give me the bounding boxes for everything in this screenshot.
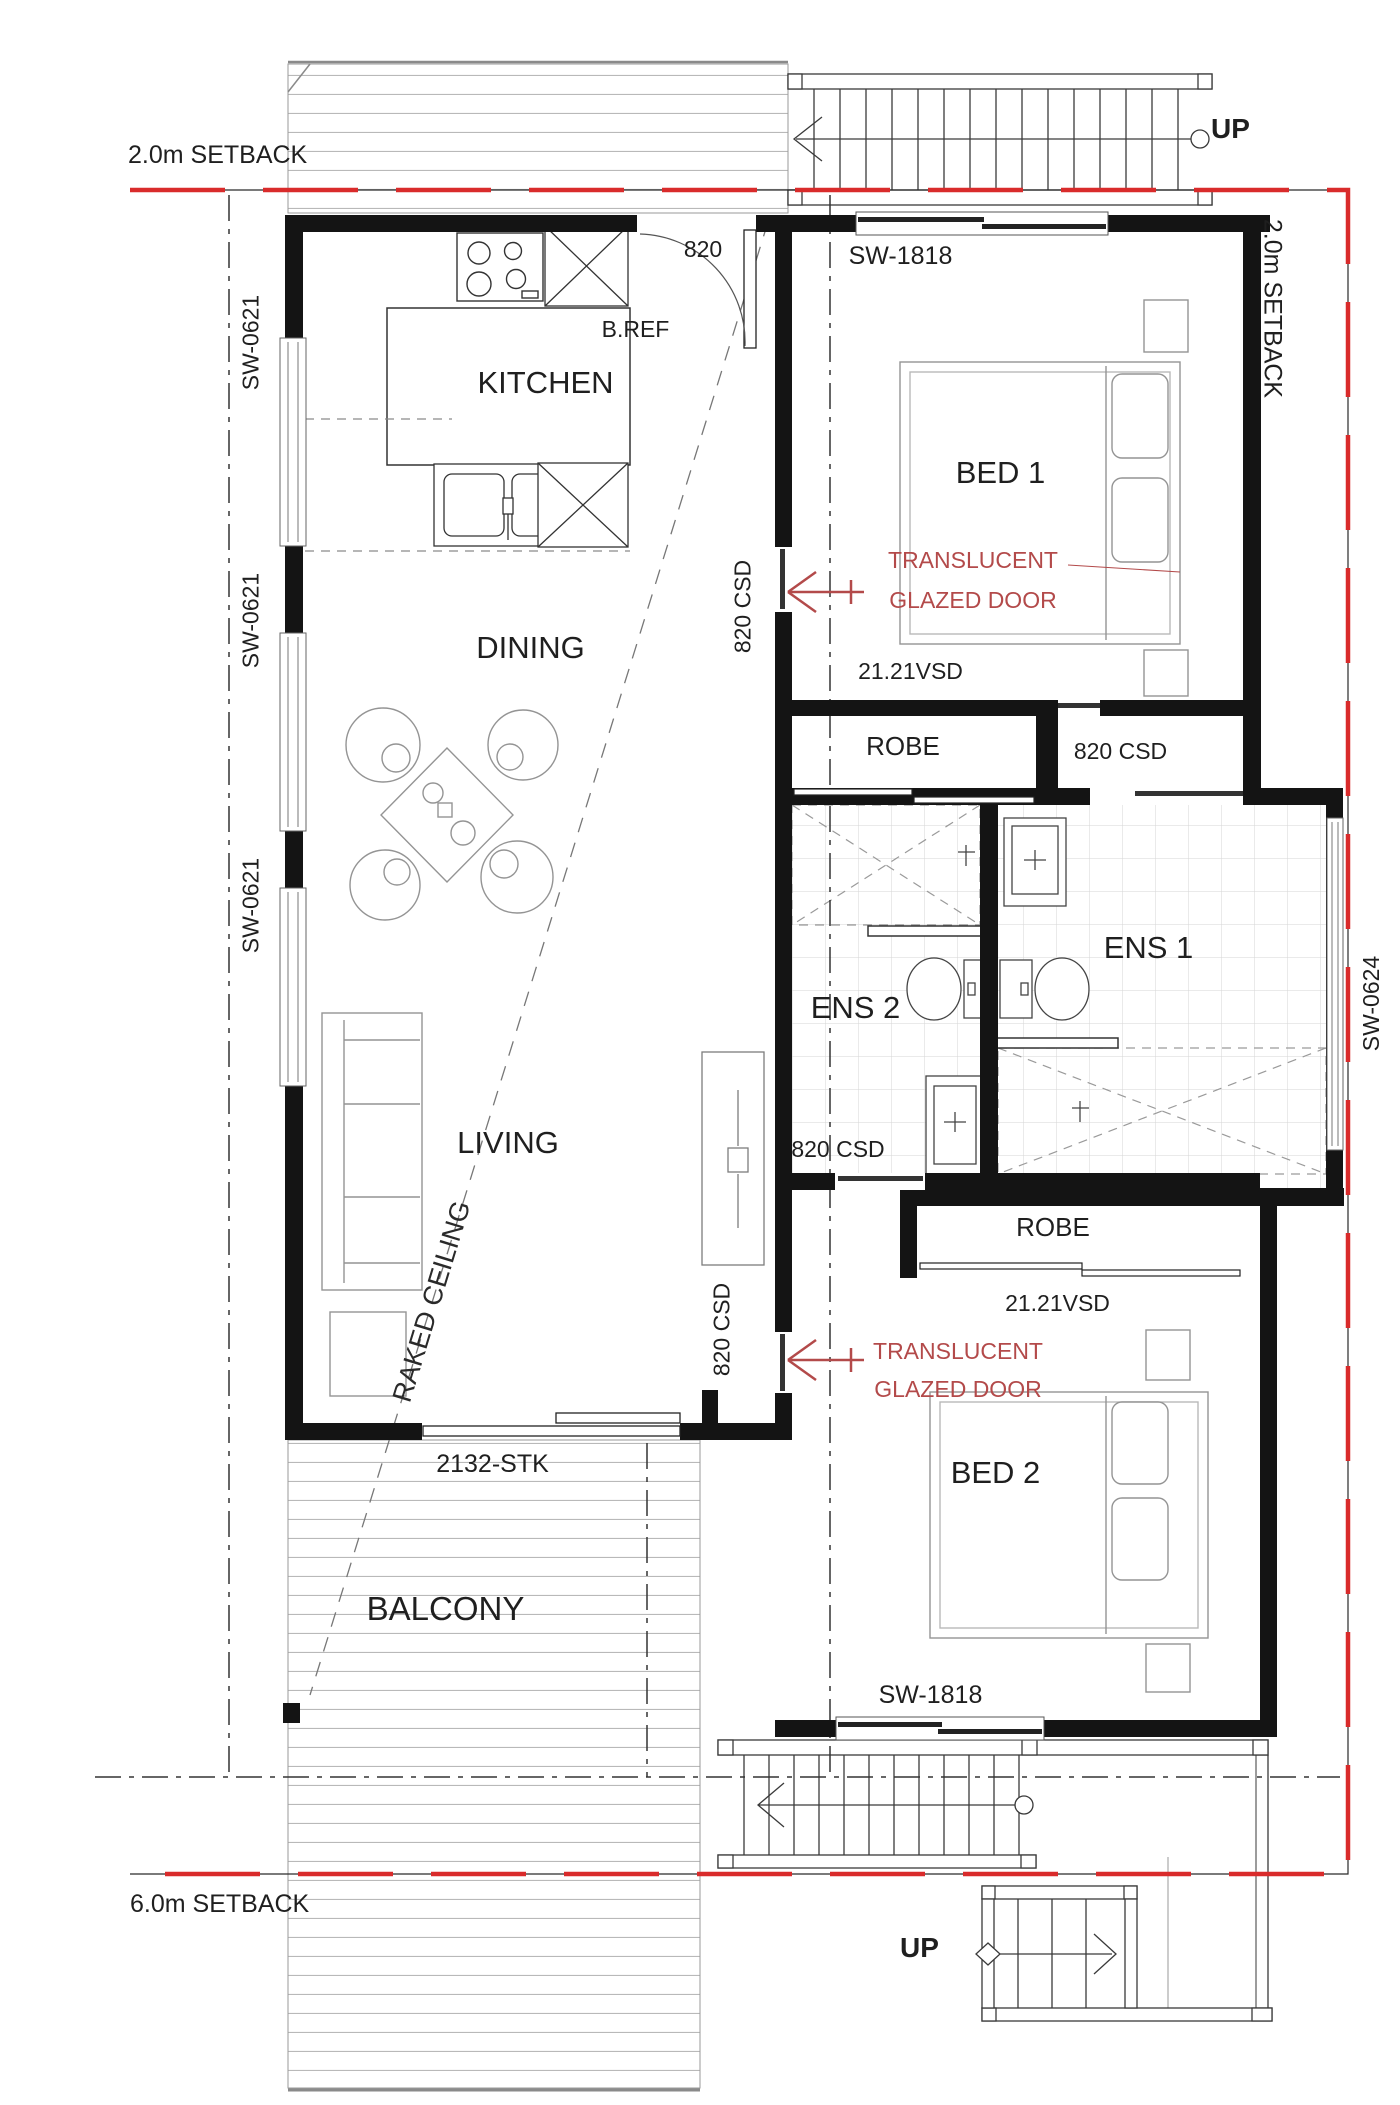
room-label-ens1: ENS 1: [1066, 932, 1231, 963]
floor-plan-linework: [0, 0, 1400, 2105]
stairs-lower-up: [976, 1886, 1137, 2008]
vanity-ens1-icon: [1004, 818, 1066, 906]
stair-start-marker-top: [1191, 130, 1209, 148]
stair-start-marker-lower: [976, 1943, 1000, 1965]
fridge-label: B.REF: [578, 318, 693, 341]
window-label-sw0621-3: SW-0621: [240, 851, 263, 961]
balcony-deck: [283, 1440, 700, 2090]
room-label-robe2: ROBE: [988, 1214, 1118, 1240]
robe2-door-label-vsd: 21.21VSD: [980, 1292, 1135, 1315]
window-label-sw0621-1: SW-0621: [240, 288, 263, 398]
room-label-bed2: BED 2: [913, 1457, 1078, 1488]
room-label-balcony: BALCONY: [328, 1592, 563, 1625]
dining-table-icon: [346, 708, 558, 920]
door-label-csd-ens2: 820 CSD: [768, 1138, 908, 1161]
room-label-robe1: ROBE: [838, 733, 968, 759]
window-sw0624: [1327, 818, 1343, 1150]
robe2-sliding-doors: [920, 1263, 1240, 1276]
translucent-door-note-bed1-line2: GLAZED DOOR: [878, 589, 1068, 612]
translucent-door-arrow-bed2: [788, 1340, 864, 1380]
door-label-csd-bed2: 820 CSD: [711, 1274, 734, 1386]
tv-unit-icon: [702, 1052, 764, 1265]
door-label-csd-bed1: 820 CSD: [732, 551, 755, 663]
window-sw1818-top: [856, 212, 1108, 235]
room-label-dining: DINING: [438, 632, 623, 663]
translucent-door-note-bed2-line2: GLAZED DOOR: [863, 1378, 1053, 1401]
window-label-sw0624: SW-0624: [1360, 946, 1383, 1061]
bed1-icon: [900, 300, 1188, 696]
window-sw1818-bottom: [836, 1717, 1044, 1740]
entry-door-label: 820: [668, 238, 738, 261]
room-label-kitchen: KITCHEN: [448, 367, 643, 398]
cooktop-icon: [457, 233, 543, 301]
fridge-icon: [545, 226, 628, 306]
setback-label-right: 2.0m SETBACK: [1260, 194, 1285, 424]
window-label-sw0621-2: SW-0621: [240, 566, 263, 676]
setback-label-bottom: 6.0m SETBACK: [130, 1892, 309, 1917]
stacker-door-2132: [423, 1413, 680, 1436]
window-label-sw1818-top: SW-1818: [808, 244, 993, 269]
dishwasher-icon: [538, 463, 628, 547]
door-label-csd-ens1: 820 CSD: [1048, 740, 1193, 763]
window-sw0621-1: [280, 338, 306, 546]
window-sw0621-2: [280, 633, 306, 831]
window-sw0621-3: [280, 888, 306, 1086]
up-label-bottom: UP: [900, 1934, 939, 1962]
room-label-living: LIVING: [418, 1127, 598, 1158]
window-label-sw1818-bottom: SW-1818: [838, 1683, 1023, 1708]
translucent-door-note-bed1-line1: TRANSLUCENT: [878, 549, 1068, 572]
stairs-bottom: [718, 1740, 1268, 1868]
stair-start-marker-bottom: [1015, 1796, 1033, 1814]
room-label-ens2: ENS 2: [773, 992, 938, 1023]
vanity-ens2-icon: [926, 1076, 984, 1174]
setback-label-top: 2.0m SETBACK: [128, 143, 307, 168]
shower-screen-ens1: [994, 1038, 1118, 1048]
up-label-top: UP: [1211, 115, 1250, 143]
room-label-bed1: BED 1: [918, 457, 1083, 488]
translucent-door-note-bed2-line1: TRANSLUCENT: [863, 1340, 1053, 1363]
stacker-door-label: 2132-STK: [400, 1452, 585, 1477]
stairs-top: [788, 74, 1212, 205]
sofa-icon: [322, 1013, 422, 1290]
shower-screen-ens2: [868, 926, 992, 936]
toilet-ens1-icon: [1000, 958, 1089, 1020]
robe1-door-label-vsd: 21.21VSD: [833, 660, 988, 683]
floor-plan: 2.0m SETBACK UP 2.0m SETBACK 6.0m SETBAC…: [0, 0, 1400, 2105]
